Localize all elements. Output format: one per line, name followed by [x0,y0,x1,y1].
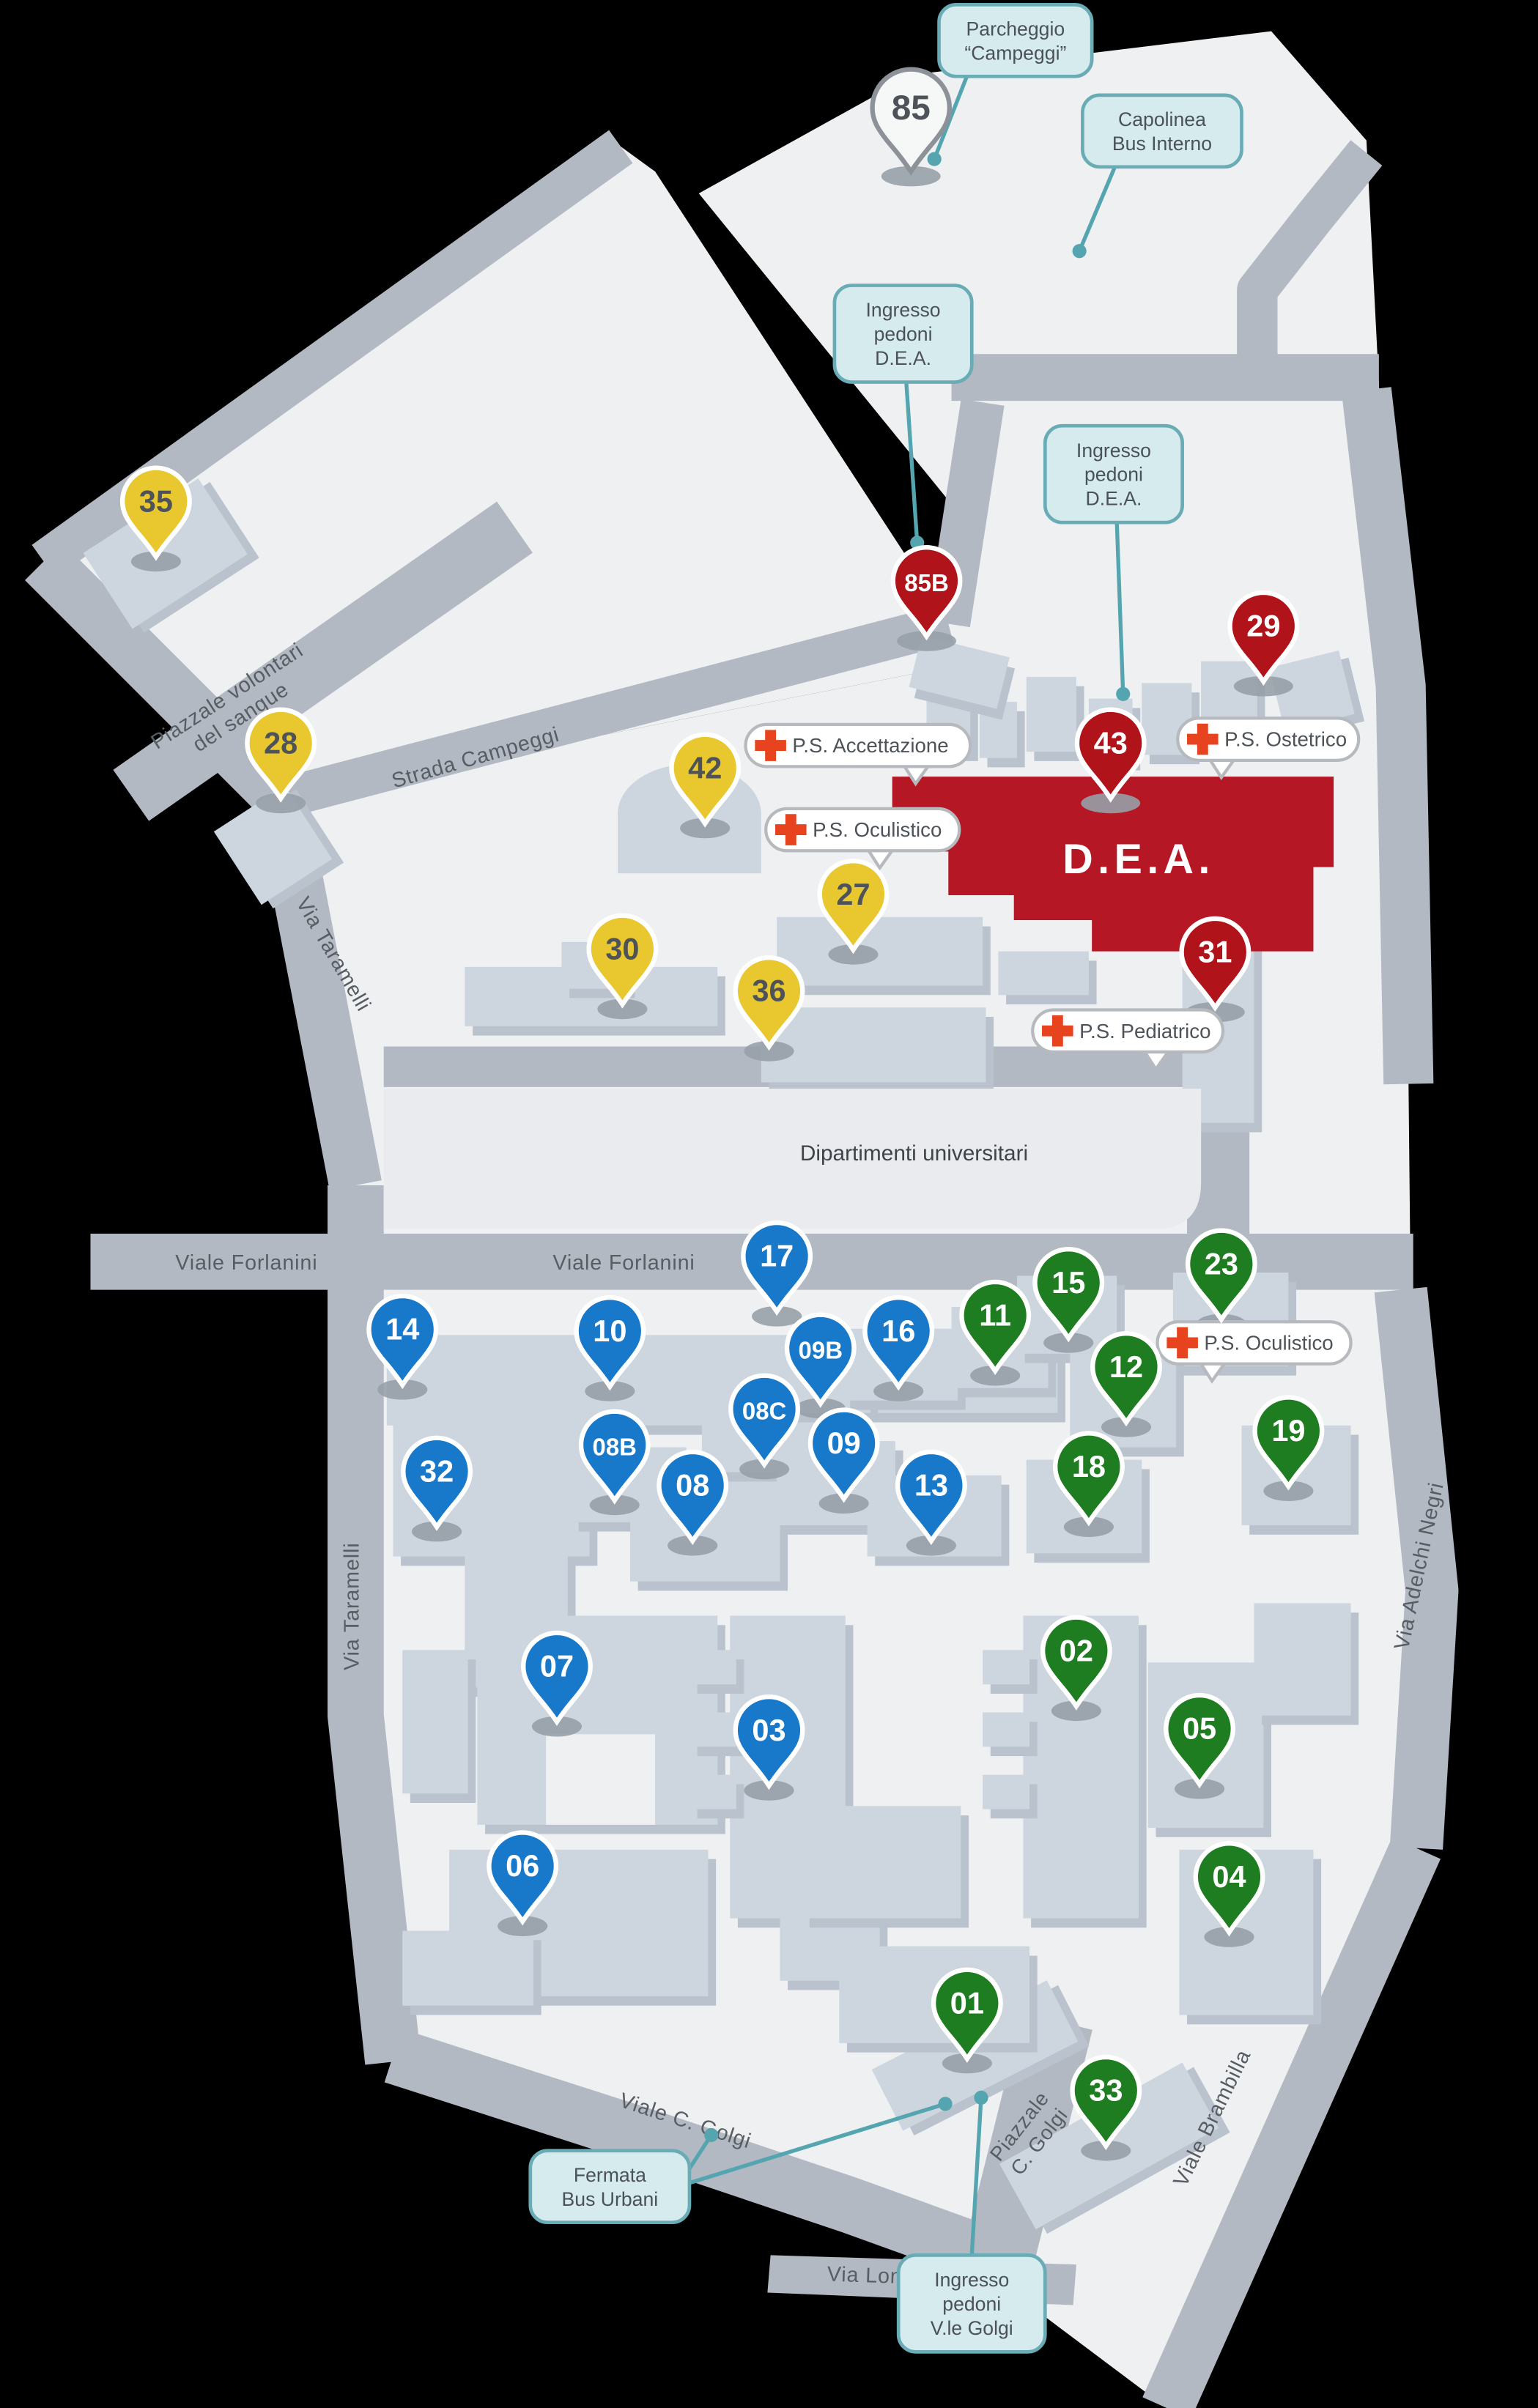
dea-label: D.E.A. [1062,836,1215,883]
pin-number: 12 [1109,1349,1143,1384]
street-label-viale-forlanini-centro: Viale Forlanini [552,1251,695,1275]
building [402,1931,533,2006]
pin-number: 01 [950,1985,984,2020]
callout-text: Capolinea [1118,108,1206,130]
callout-box [530,2151,689,2223]
connector-dot [938,2097,952,2111]
pin-number: 10 [593,1314,626,1348]
ps-label-text: P.S. Accettazione [792,734,948,757]
building [689,1650,736,1684]
callout-ingresso-pedoni-dea-1: IngressopedoniD.E.A. [835,286,972,382]
building [1254,1603,1351,1715]
building [983,1650,1029,1684]
pin-number: 42 [688,750,722,785]
pin-number: 18 [1072,1449,1106,1483]
callout-text: Ingresso [934,2269,1009,2291]
pin-number: 07 [540,1649,574,1683]
callout-text: D.E.A. [1086,488,1142,510]
street-label-text: Viale Forlanini [552,1251,695,1275]
campus-map-svg: Dipartimenti universitariD.E.A.Piazzale … [0,0,1538,2408]
pin-number: 43 [1094,725,1128,760]
pin-number: 14 [385,1312,419,1346]
pin-number: 15 [1051,1265,1085,1300]
callout-capolinea-bus-interno: CapolineaBus Interno [1082,95,1241,167]
pin-number: 28 [264,725,297,760]
pin-number: 33 [1089,2073,1123,2108]
ps-label-text: P.S. Oculistico [1204,1332,1333,1355]
ps-label-text: P.S. Pediatrico [1079,1020,1210,1042]
callout-text: pedoni [942,2293,1001,2315]
dipartimenti-label: Dipartimenti universitari [800,1141,1028,1166]
pin-number: 27 [836,877,870,911]
pin-number: 23 [1205,1246,1238,1281]
pin-number: 16 [881,1314,915,1348]
street-label-text: Via Taramelli [341,1543,364,1670]
pin-number: 17 [760,1239,794,1273]
connector-dot [1073,244,1087,258]
callout-box [939,4,1093,76]
building [802,1806,961,1918]
street-label-viale-forlanini-ovest: Viale Forlanini [175,1251,317,1275]
pin-number: 03 [752,1713,785,1747]
connector-dot [704,2128,718,2142]
pin-number: 36 [752,974,785,1008]
pin-number: 02 [1060,1633,1093,1667]
pin-number: 13 [914,1468,948,1503]
pin-number: 19 [1271,1413,1305,1448]
street-label-via-taramelli-sud: Via Taramelli [341,1543,364,1670]
building [777,917,983,986]
callout-text: pedoni [1084,464,1143,486]
callout-fermata-bus-urbani: FermataBus Urbani [530,2151,689,2223]
pin-number: 05 [1183,1711,1216,1746]
building [402,1650,467,1793]
callout-ingresso-pedoni-dea-2: IngressopedoniD.E.A. [1045,426,1182,522]
pin-number: 09 [827,1426,861,1460]
callout-text: Ingresso [1076,440,1151,462]
pin-number: 85B [904,569,949,596]
pin-number: 08 [676,1468,709,1503]
pin-number: 85 [892,89,931,127]
building [998,952,1088,996]
pin-number: 29 [1246,609,1280,643]
hospital-campus-map: Dipartimenti universitariD.E.A.Piazzale … [0,0,1538,2408]
connector-dot [1116,687,1130,701]
callout-ingresso-pedoni-vle-golgi: IngressopedoniV.le Golgi [898,2255,1045,2352]
callout-text: Bus Urbani [562,2188,659,2210]
building [1027,677,1076,752]
callout-text: Ingresso [866,299,941,321]
courtyard [546,1734,655,1824]
dipartimenti-building [384,1089,1201,1229]
callout-text: Parcheggio [966,18,1065,40]
ps-label-text: P.S. Oculistico [813,818,942,841]
callout-box [1082,95,1241,167]
building [689,1713,736,1747]
pin-number: 04 [1212,1859,1246,1894]
connector-dot [974,2091,988,2105]
callout-text: pedoni [874,323,933,345]
pin-number: 06 [506,1848,539,1883]
pin-number: 32 [420,1453,454,1488]
callout-text: D.E.A. [875,347,931,369]
pin-number: 30 [605,931,639,966]
callout-text: Bus Interno [1112,133,1212,155]
pin-number: 11 [979,1298,1011,1333]
building [761,1007,986,1082]
pin-number: 09B [798,1336,843,1363]
pin-number: 35 [139,484,173,518]
building [983,1775,1029,1809]
callout-parcheggio-campeggi: Parcheggio“Campeggi” [939,4,1093,76]
callout-text: Fermata [574,2164,646,2186]
pin-number: 31 [1198,935,1232,969]
pin-number: 08B [592,1433,637,1460]
callout-text: V.le Golgi [931,2317,1013,2339]
building [689,1775,736,1809]
callout-text: “Campeggi” [964,42,1066,64]
ps-label-text: P.S. Ostetrico [1224,728,1347,751]
building [983,1713,1029,1747]
street-label-text: Viale Forlanini [175,1251,317,1275]
connector-dot [928,152,942,166]
pin-number: 08C [742,1397,787,1424]
